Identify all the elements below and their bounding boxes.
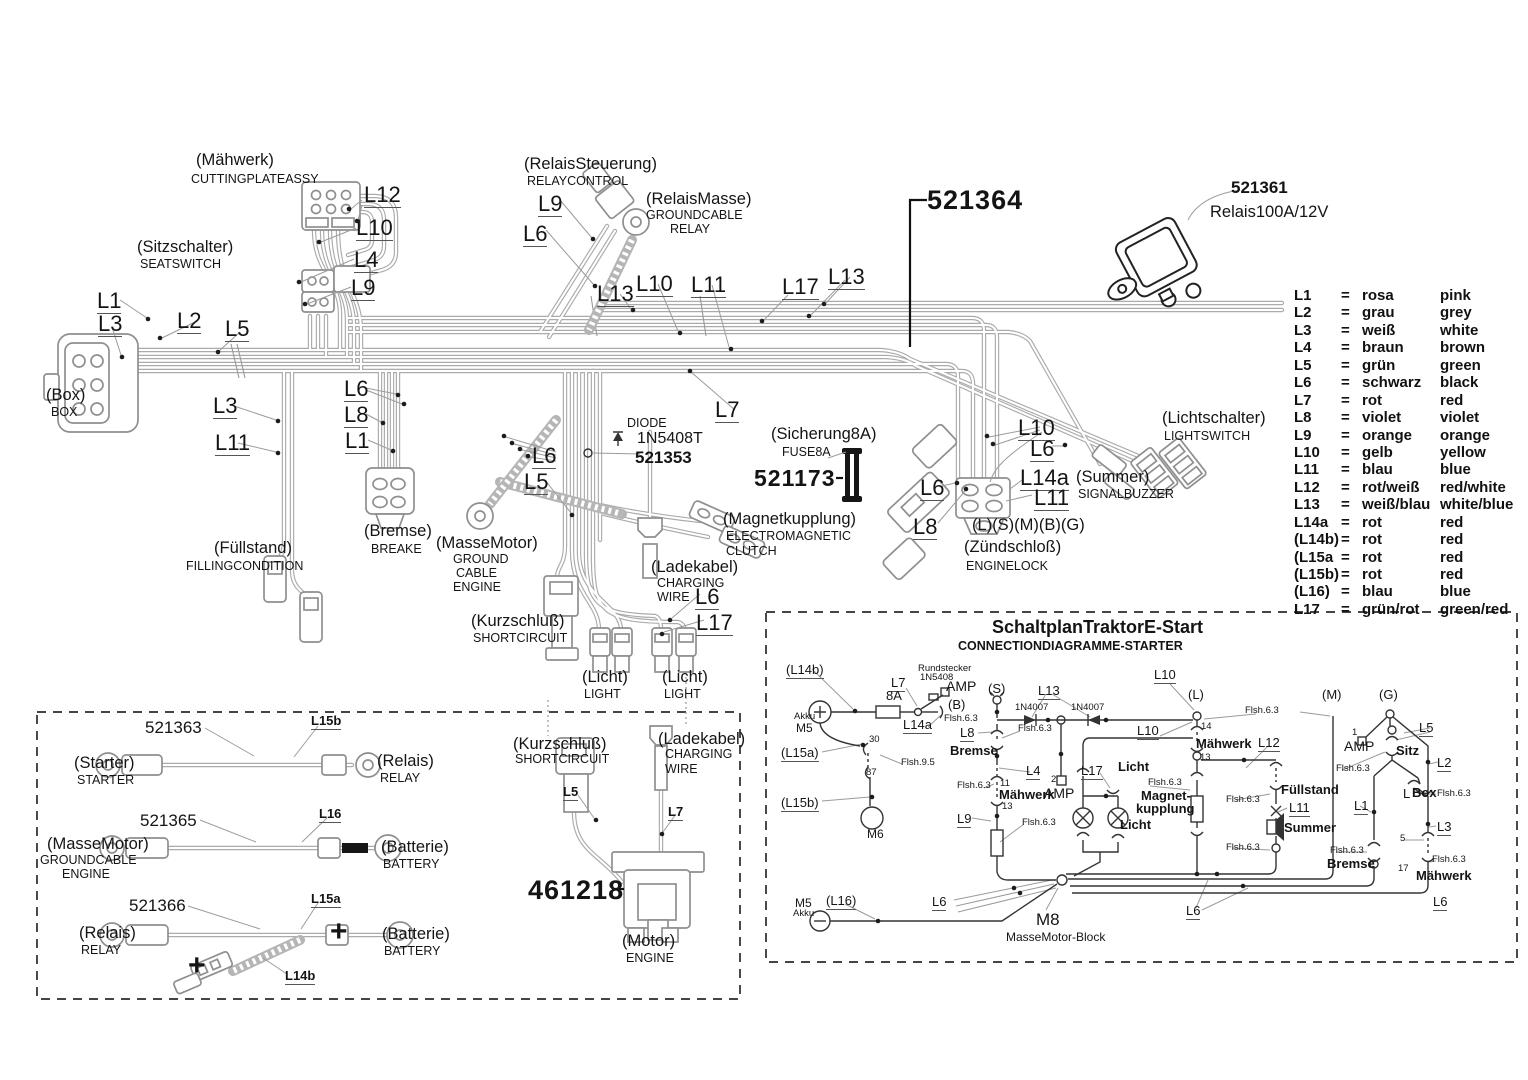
pn-521361-label: 521361 [1231,179,1288,197]
legend-row: L8=violetviolet [1294,409,1513,426]
bremse-en-label: BREAKE [371,543,422,556]
fuell-de-label: (Füllstand) [214,540,292,557]
legend-eq: = [1341,322,1362,339]
motor-de-label: (Motor) [622,933,675,950]
magnet-de-label: (Magnetkupplung) [723,511,856,528]
s-l16-label: (L16) [826,894,856,910]
s-sitz-label: Sitz [1396,744,1419,758]
s-l14a-label: L14a [903,718,932,734]
legend-en: blue [1440,461,1513,478]
legend-row: L10=gelbyellow [1294,444,1513,461]
s-13b-label: 13 [1200,753,1211,763]
s-flsh11-label: Flsh.6.3 [1330,846,1364,856]
legend-row: L14a=rotred [1294,514,1513,531]
s-flsh8-label: Flsh.6.3 [1226,843,1260,853]
s-flsh10-label: Flsh.6.3 [1336,764,1370,774]
l13-b-label: L13 [828,265,865,290]
legend-en: red [1440,549,1513,566]
schem-sub-label: CONNECTIONDIAGRAMME-STARTER [958,640,1183,653]
l8-b-label: L8 [913,515,937,540]
s-Lp-label: L [1403,787,1410,801]
s-l10b-label: L10 [1137,724,1159,740]
s-l17-label: L17 [1081,764,1103,780]
relmasse-de-label: (RelaisMasse) [646,191,751,208]
legend-code: L3 [1294,322,1341,339]
s-d2-label: 1N4007 [1071,703,1104,713]
mm1-de-label: (MasseMotor) [436,535,538,552]
l15b-a-label: L15b [311,714,341,730]
legend-de: rot/weiß [1362,479,1440,496]
s-flsh1-label: Flsh.6.3 [944,714,978,724]
s-flsh9-label: Flsh.6.3 [1437,789,1471,799]
batt1-de-label: (Batterie) [381,839,449,856]
bremse-de-label: (Bremse) [364,523,432,540]
zuend-pins-label: (L)(S)(M)(B)(G) [972,517,1085,534]
diode-pn-label: 1N5408T [637,431,703,448]
kurz2-en-label: SHORTCIRCUIT [515,753,609,766]
sich-en-label: FUSE8A [782,446,831,459]
legend-code: (L15a [1294,549,1341,566]
pn-521353-label: 521353 [635,449,692,467]
legend-en: red [1440,514,1513,531]
relais100-label: Relais100A/12V [1210,204,1328,221]
lade2-de-label: (Ladekabel) [658,731,745,748]
s-l1-label: L1 [1354,799,1368,815]
s-flsh2-label: Flsh.6.3 [1018,724,1052,734]
legend-row: (L15a=rotred [1294,549,1513,566]
legend-row: L1=rosapink [1294,287,1513,304]
s-M-label: (M) [1322,688,1342,702]
l9-b-label: L9 [538,192,562,217]
starter-de-label: (Starter) [74,755,135,772]
relmasse-en1-label: GROUNDCABLE [646,209,743,222]
legend-code: L17 [1294,601,1341,618]
s-flsh4-label: Flsh.6.3 [1022,818,1056,828]
pn-521364-label: 521364 [927,186,1023,214]
plus1-label: + [330,916,348,948]
l5-b-label: L5 [524,470,548,495]
l7-b-label: L7 [668,805,683,821]
mm2-en2-label: ENGINE [62,868,110,881]
l5-c-label: L5 [563,785,578,801]
legend-en: violet [1440,409,1513,426]
s-m5a-label: M5 [796,722,813,735]
legend-code: L10 [1294,444,1341,461]
lade2-en1-label: CHARGING [665,748,732,761]
legend-code: L11 [1294,461,1341,478]
pn-521366-label: 521366 [129,897,186,915]
legend-eq: = [1341,514,1362,531]
legend-row: L9=orangeorange [1294,427,1513,444]
s-flsh95-label: Flsh.9.5 [901,758,935,768]
s-licht1-label: Licht [1118,760,1149,774]
pn-521173-label: 521173 [754,466,835,490]
legend-row: (L14b)=rotred [1294,531,1513,548]
legend-row: L2=graugrey [1294,304,1513,321]
l15a-a-label: L15a [311,892,341,908]
batt1-en-label: BATTERY [383,858,440,871]
legend-eq: = [1341,427,1362,444]
legend-eq: = [1341,287,1362,304]
legend-en: red [1440,566,1513,583]
s-8a-label: 8A [886,689,902,703]
legend-code: (L15b) [1294,566,1341,583]
legend-eq: = [1341,461,1362,478]
s-amp1-label: AMP [946,679,976,694]
s-l8-label: L8 [960,726,974,742]
legend-de: orange [1362,427,1440,444]
motor-en-label: ENGINE [626,952,674,965]
licht2-en-label: LIGHT [664,688,701,701]
s-17-label: 17 [1398,864,1409,874]
l10-b-label: L10 [636,272,673,297]
s-l9-label: L9 [957,812,971,828]
l6-c-label: L6 [920,476,944,501]
schem-title-label: SchaltplanTraktorE-Start [992,618,1203,637]
s-30-label: 30 [869,735,880,745]
s-flsh5-label: Flsh.6.3 [1245,706,1279,716]
legend-code: L1 [1294,287,1341,304]
legend-en: green/red [1440,601,1513,618]
kurz2-de-label: (Kurzschluß) [513,736,607,753]
legend-de: grau [1362,304,1440,321]
s-1-label: 1 [1352,728,1357,738]
sitz-de-label: (Sitzschalter) [137,239,233,256]
s-l13-label: L13 [1038,684,1060,700]
legend-code: L13 [1294,496,1341,513]
s-box-label: Box [1412,786,1437,800]
s-flsh6-label: Flsh.6.3 [1148,778,1182,788]
light-connectors [590,628,696,672]
legend-de: blau [1362,583,1440,600]
s-maeh2-label: Mähwerk [1196,737,1252,751]
l13-a-label: L13 [597,282,634,307]
s-amp3-label: AMP [1344,739,1374,754]
mm1-en2-label: CABLE [456,567,497,580]
s-magnet2-label: kupplung [1136,802,1195,816]
legend-code: L14a [1294,514,1341,531]
s-l4-label: L4 [1026,764,1040,780]
mm1-en3-label: ENGINE [453,581,501,594]
legend-de: grün [1362,357,1440,374]
legend-eq: = [1341,339,1362,356]
s-l10a-label: L10 [1154,668,1176,684]
l6-b-label: L6 [523,222,547,247]
l6-e-label: L6 [532,444,556,469]
legend-row: L6=schwarzblack [1294,374,1513,391]
relais1-de-label: (Relais) [377,753,434,770]
s-b-label: (B) [948,698,965,712]
s-13a-label: 13 [1002,802,1013,812]
l11-b-label: L11 [691,273,726,298]
l3-b-label: L3 [213,394,237,419]
legend-row: L4=braunbrown [1294,339,1513,356]
box-de-label: (Box) [46,387,85,404]
mm2-en1-label: GROUNDCABLE [40,854,137,867]
kurz1-de-label: (Kurzschluß) [471,613,565,630]
l17-b-label: L17 [696,611,733,636]
fuell-en-label: FILLINGCONDITION [186,560,303,573]
legend-de: rot [1362,549,1440,566]
legend-code: L4 [1294,339,1341,356]
s-l15a-label: (L15a) [781,746,819,762]
lade1-en2-label: WIRE [657,591,690,604]
l14b-a-label: L14b [285,969,315,985]
s-akku2-label: Akku [793,909,814,919]
s-s-label: (S) [988,682,1005,696]
l6-f-label: L6 [695,585,719,610]
l3-a-label: L3 [98,312,122,337]
s-l6b-label: L6 [1186,904,1200,920]
engine-connector [612,852,704,942]
legend-row: (L16)=blaublue [1294,583,1513,600]
l17-a-label: L17 [782,275,819,300]
s-bremse1-label: Bremse [950,744,998,758]
legend-en: pink [1440,287,1513,304]
s-l14b-label: (L14b) [786,663,824,679]
legend-de: grün/rot [1362,601,1440,618]
s-m8-label: M8 [1036,911,1060,929]
l4-a-label: L4 [354,248,378,273]
battery-minus-mark [342,843,368,853]
l1-b-label: L1 [345,429,369,454]
s-l11-label: L11 [1289,801,1310,817]
legend-row: L3=weißwhite [1294,322,1513,339]
legend-eq: = [1341,566,1362,583]
legend-en: black [1440,374,1513,391]
licht2-de-label: (Licht) [662,669,708,686]
legend-eq: = [1341,479,1362,496]
s-m6-label: M6 [867,828,884,841]
s-mmblock-label: MasseMotor-Block [1006,931,1105,944]
legend-de: gelb [1362,444,1440,461]
brake-connector [366,468,414,528]
relais1-en-label: RELAY [380,772,420,785]
mahwerk-de-label: (Mähwerk) [196,152,274,169]
sitz-en-label: SEATSWITCH [140,258,221,271]
legend-en: yellow [1440,444,1513,461]
pn-461218-label: 461218 [528,876,624,904]
mm1-en1-label: GROUND [453,553,509,566]
l6-a-label: L6 [344,377,368,402]
legend-de: weiß/blau [1362,496,1440,513]
legend-code: L8 [1294,409,1341,426]
s-bremse2-label: Bremse [1327,857,1375,871]
legend-row: L17=grün/rotgreen/red [1294,601,1513,618]
pn-521363-label: 521363 [145,719,202,737]
legend-en: red/white [1440,479,1513,496]
legend-code: L9 [1294,427,1341,444]
zuend-de-label: (Zündschloß) [964,539,1061,556]
lade1-de-label: (Ladekabel) [651,559,738,576]
summer-en-label: SIGNALBUZZER [1078,488,1174,501]
legend-de: rot [1362,531,1440,548]
mower-connector [302,182,360,230]
l6-d-label: L6 [1030,437,1054,462]
legend-en: grey [1440,304,1513,321]
legend-row: L12=rot/weißred/white [1294,479,1513,496]
fuse-8a-part [836,448,862,502]
batt2-en-label: BATTERY [384,945,441,958]
ground-ring-engine [467,503,493,529]
sich-de-label: (Sicherung8A) [771,426,876,443]
legend-de: rot [1362,392,1440,409]
zuend-en-label: ENGINELOCK [966,560,1048,573]
legend-code: L12 [1294,479,1341,496]
legend-de: weiß [1362,322,1440,339]
s-14-label: 14 [1201,722,1212,732]
legend-de: blau [1362,461,1440,478]
legend-row: L11=blaublue [1294,461,1513,478]
s-flsh12-label: Flsh.6.3 [1432,855,1466,865]
legend-en: red [1440,392,1513,409]
plus2-label: + [188,950,206,982]
relsteu-de-label: (RelaisSteuerung) [524,156,657,173]
legend-de: braun [1362,339,1440,356]
l5-a-label: L5 [225,317,249,342]
l2-a-label: L2 [177,309,201,334]
l11-c-label: L11 [1034,486,1069,511]
starter-en-label: STARTER [77,774,134,787]
legend-eq: = [1341,409,1362,426]
s-2-label: 2 [1051,775,1056,785]
pn-521365-label: 521365 [140,812,197,830]
legend-eq: = [1341,549,1362,566]
legend-eq: = [1341,531,1362,548]
l10-a-label: L10 [356,216,393,241]
relais2-de-label: (Relais) [79,925,136,942]
legend-eq: = [1341,304,1362,321]
relmasse-en2-label: RELAY [670,223,710,236]
licht1-de-label: (Licht) [582,669,628,686]
s-87-label: 87 [866,768,877,778]
s-l15b-label: (L15b) [781,796,819,812]
legend-en: brown [1440,339,1513,356]
legend-code: (L14b) [1294,531,1341,548]
s-summer-label: Summer [1284,821,1336,835]
legend-de: schwarz [1362,374,1440,391]
legend-eq: = [1341,357,1362,374]
s-l2-label: L2 [1437,756,1451,772]
legend-row: (L15b)=rotred [1294,566,1513,583]
legend-en: white/blue [1440,496,1513,513]
kurz1-en-label: SHORTCIRCUIT [473,632,567,645]
s-l3-label: L3 [1437,820,1451,836]
s-flsh3-label: Flsh.6.3 [957,781,991,791]
legend-de: rosa [1362,287,1440,304]
legend-code: (L16) [1294,583,1341,600]
legend-code: L2 [1294,304,1341,321]
s-l6c-label: L6 [932,895,946,911]
l12-a-label: L12 [364,183,401,208]
summer-de-label: (Summer) [1076,469,1149,486]
legend-de: violet [1362,409,1440,426]
s-l6a-label: L6 [1433,895,1447,911]
legend-en: blue [1440,583,1513,600]
box-en-label: BOX [51,406,77,419]
magnet-en2-label: CLUTCH [726,545,777,558]
legend-en: green [1440,357,1513,374]
legend-code: L5 [1294,357,1341,374]
wiring-diagram-page: (Mähwerk)CUTTINGPLATEASSYL12L10L4L9(Sitz… [0,0,1528,1080]
wire-color-legend: L1=rosapinkL2=graugreyL3=weißwhiteL4=bra… [1294,287,1513,618]
diode-t-label: DIODE [627,417,667,430]
l16-a-label: L16 [319,807,341,823]
mahwerk-en-label: CUTTINGPLATEASSY [191,173,319,186]
s-flsh7-label: Flsh.6.3 [1226,795,1260,805]
s-maeh3-label: Mähwerk [1416,869,1472,883]
licht-en-label: LIGHTSWITCH [1164,430,1250,443]
legend-eq: = [1341,444,1362,461]
s-d1-label: 1N4007 [1015,703,1048,713]
legend-de: rot [1362,514,1440,531]
s-G-label: (G) [1379,688,1398,702]
l8-a-label: L8 [344,403,368,428]
magnet-en1-label: ELECTROMAGNETIC [726,530,851,543]
legend-code: L6 [1294,374,1341,391]
lade2-en2-label: WIRE [665,763,698,776]
legend-eq: = [1341,583,1362,600]
legend-eq: = [1341,392,1362,409]
legend-en: red [1440,531,1513,548]
s-fuell-label: Füllstand [1281,783,1339,797]
l7-a-label: L7 [715,398,739,423]
legend-de: rot [1362,566,1440,583]
legend-en: white [1440,322,1513,339]
legend-eq: = [1341,496,1362,513]
l11-a-label: L11 [215,431,250,456]
relay-521361-part [1089,215,1211,333]
l9-a-label: L9 [351,276,375,301]
s-l5-label: L5 [1419,721,1433,737]
s-licht2-label: Licht [1120,818,1151,832]
mm2-de-label: (MasseMotor) [47,836,149,853]
s-amp2-label: AMP [1044,786,1074,801]
legend-en: orange [1440,427,1513,444]
s-5-label: 5 [1400,834,1405,844]
legend-code: L7 [1294,392,1341,409]
legend-row: L13=weiß/blauwhite/blue [1294,496,1513,513]
relsteu-en-label: RELAYCONTROL [527,175,628,188]
licht1-en-label: LIGHT [584,688,621,701]
legend-row: L7=rotred [1294,392,1513,409]
licht-de-label: (Lichtschalter) [1162,410,1266,427]
s-L-label: (L) [1188,688,1204,702]
s-l12-label: L12 [1258,736,1280,752]
legend-row: L5=grüngreen [1294,357,1513,374]
batt2-de-label: (Batterie) [382,926,450,943]
legend-eq: = [1341,601,1362,618]
relais2-en-label: RELAY [81,944,121,957]
legend-eq: = [1341,374,1362,391]
